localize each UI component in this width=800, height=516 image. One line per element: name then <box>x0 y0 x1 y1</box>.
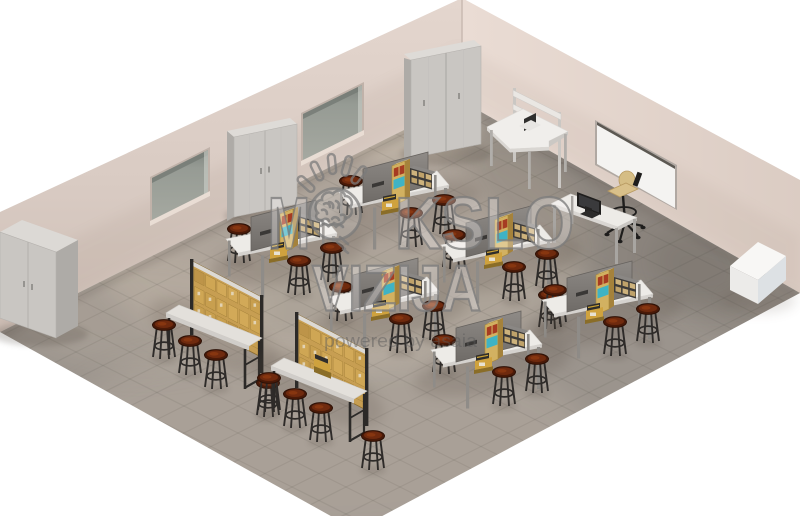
svg-text:M: M <box>268 184 310 265</box>
svg-text:powered by asaia: powered by asaia <box>324 331 478 351</box>
svg-text:VIZIJA: VIZIJA <box>312 252 481 325</box>
